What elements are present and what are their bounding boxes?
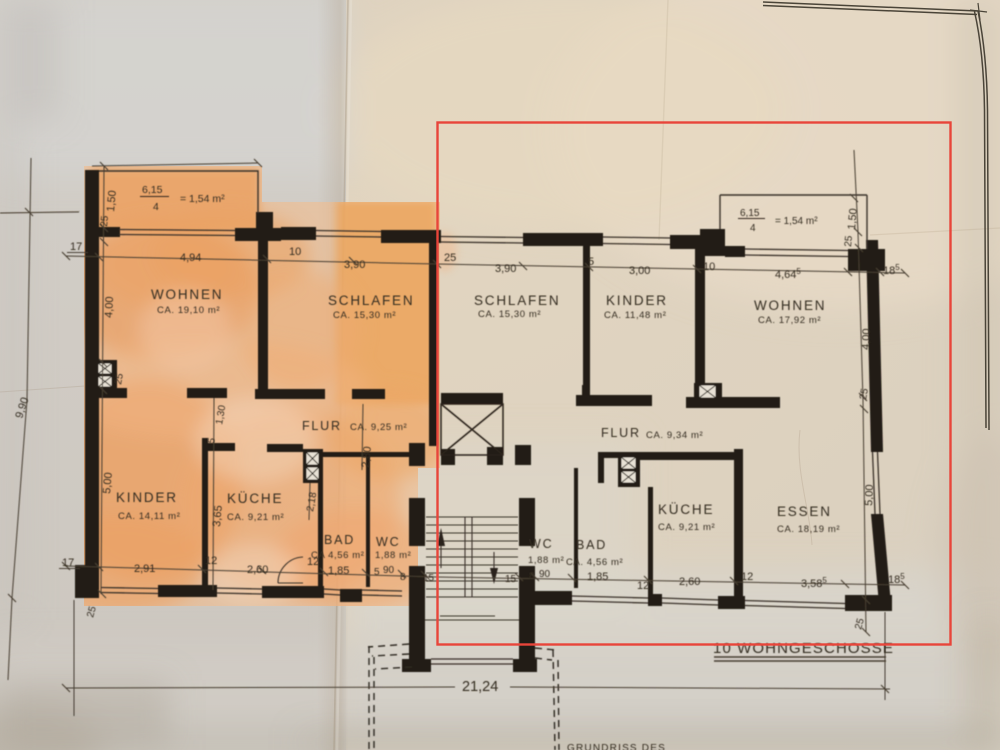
svg-text:5: 5 <box>374 567 380 578</box>
svg-text:4,94: 4,94 <box>180 252 201 264</box>
svg-text:CA. 15,30 m²: CA. 15,30 m² <box>478 309 541 320</box>
svg-text:4: 4 <box>750 223 756 234</box>
svg-text:KINDER: KINDER <box>606 293 668 308</box>
svg-text:10 WOHNGESCHOSSE: 10 WOHNGESCHOSSE <box>713 640 894 657</box>
svg-text:WC: WC <box>376 535 400 549</box>
svg-text:17: 17 <box>70 241 82 253</box>
svg-text:12: 12 <box>307 556 319 568</box>
svg-text:SCHLAFEN: SCHLAFEN <box>474 293 560 308</box>
svg-text:25: 25 <box>444 252 456 264</box>
svg-text:21,24: 21,24 <box>462 679 498 695</box>
svg-text:CA. 19,10 m²: CA. 19,10 m² <box>157 305 220 316</box>
svg-text:1,85: 1,85 <box>587 571 608 583</box>
svg-text:4,00: 4,00 <box>103 296 116 318</box>
svg-text:BAD: BAD <box>324 533 355 547</box>
svg-text:WOHNEN: WOHNEN <box>151 287 223 302</box>
svg-text:ESSEN: ESSEN <box>777 504 832 519</box>
svg-text:2,60: 2,60 <box>679 576 700 588</box>
svg-text:17: 17 <box>62 557 74 569</box>
svg-text:3,65: 3,65 <box>211 505 225 527</box>
svg-text:90: 90 <box>383 565 395 576</box>
svg-text:1,88 m²: 1,88 m² <box>375 550 411 561</box>
svg-text:CA. 17,92 m²: CA. 17,92 m² <box>758 315 821 326</box>
svg-text:3,00: 3,00 <box>629 265 650 277</box>
svg-text:1,50: 1,50 <box>846 208 860 230</box>
svg-text:FLUR: FLUR <box>302 419 342 433</box>
svg-text:KÜCHE: KÜCHE <box>658 502 714 517</box>
svg-text:2,91: 2,91 <box>134 563 155 575</box>
svg-text:3,90: 3,90 <box>344 259 365 271</box>
svg-text:5: 5 <box>588 256 594 268</box>
svg-text:15: 15 <box>505 574 517 585</box>
svg-text:15: 15 <box>423 573 435 584</box>
svg-text:CA. 15,30 m²: CA. 15,30 m² <box>333 310 396 321</box>
svg-text:5,00: 5,00 <box>863 484 876 506</box>
svg-text:5,00: 5,00 <box>101 472 115 494</box>
svg-text:4: 4 <box>153 201 159 213</box>
svg-text:25: 25 <box>843 235 855 247</box>
svg-text:1,85: 1,85 <box>328 565 349 577</box>
svg-text:= 1,54 m²: = 1,54 m² <box>180 193 225 205</box>
svg-text:3,90: 3,90 <box>495 263 516 275</box>
svg-text:GRUNDRISS DES: GRUNDRISS DES <box>567 743 666 750</box>
svg-text:CA. 9,21 m²: CA. 9,21 m² <box>658 522 715 533</box>
svg-text:8: 8 <box>529 571 535 582</box>
svg-text:= 1,54 m²: = 1,54 m² <box>775 216 818 227</box>
svg-text:10: 10 <box>703 261 715 273</box>
svg-text:WC: WC <box>529 537 553 551</box>
svg-text:SCHLAFEN: SCHLAFEN <box>328 293 414 308</box>
svg-text:90: 90 <box>539 569 551 580</box>
svg-text:4,00: 4,00 <box>860 328 873 350</box>
svg-text:WOHNEN: WOHNEN <box>754 298 826 313</box>
svg-text:10: 10 <box>289 246 301 258</box>
svg-text:12: 12 <box>741 571 753 583</box>
svg-text:CA. 9,21 m²: CA. 9,21 m² <box>227 512 284 523</box>
svg-text:CA. 18,19 m²: CA. 18,19 m² <box>777 524 840 535</box>
svg-text:KINDER: KINDER <box>116 490 178 505</box>
svg-text:CA. 4,56 m²: CA. 4,56 m² <box>566 557 623 568</box>
svg-text:CA. 11,48 m²: CA. 11,48 m² <box>604 310 666 321</box>
svg-text:6,15: 6,15 <box>142 184 163 196</box>
svg-text:25: 25 <box>99 215 111 227</box>
svg-text:CA. 14,11 m²: CA. 14,11 m² <box>118 511 180 522</box>
svg-text:CA. 9,25 m²: CA. 9,25 m² <box>350 422 407 433</box>
svg-text:BAD: BAD <box>576 538 607 552</box>
svg-text:8: 8 <box>400 572 406 583</box>
svg-text:6,15: 6,15 <box>740 208 760 219</box>
svg-text:2,80: 2,80 <box>360 446 374 468</box>
svg-text:2,60: 2,60 <box>247 564 268 576</box>
svg-text:1,88 m²: 1,88 m² <box>528 555 564 566</box>
svg-text:12: 12 <box>637 580 649 592</box>
svg-text:KÜCHE: KÜCHE <box>227 491 283 506</box>
svg-text:FLUR: FLUR <box>601 426 641 440</box>
svg-text:CA. 9,34 m²: CA. 9,34 m² <box>646 430 703 441</box>
svg-text:1,50: 1,50 <box>105 190 119 212</box>
svg-text:12: 12 <box>205 555 217 567</box>
